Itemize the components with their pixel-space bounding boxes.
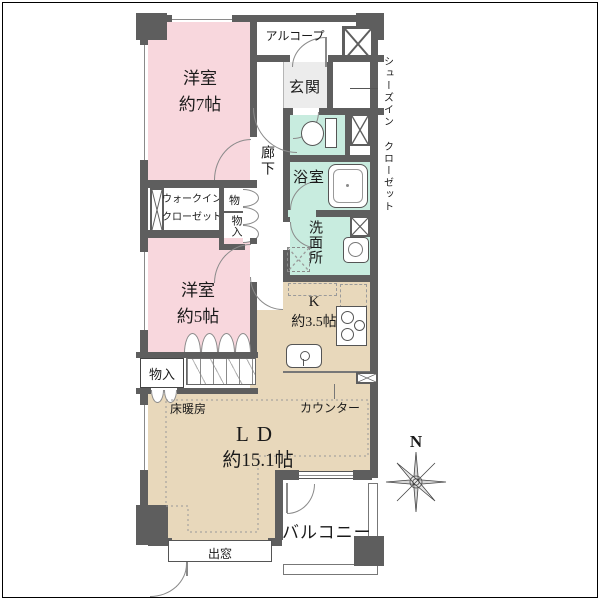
- toilet-tank-icon: [325, 118, 337, 148]
- burner: [354, 320, 365, 331]
- faucet-stem: [303, 359, 304, 366]
- entrance-label: 玄関: [289, 76, 321, 97]
- wall: [232, 15, 252, 22]
- kitchen-sink-icon: [286, 344, 322, 368]
- sic-label: シューズイン クローゼット: [380, 56, 394, 142]
- sic-label-col2: クローゼット: [382, 141, 393, 213]
- wall: [148, 180, 257, 188]
- washbasin-bowl: [348, 242, 363, 257]
- closet-bifold-door: [243, 189, 259, 207]
- wall: [140, 15, 148, 45]
- wall: [327, 62, 333, 108]
- bath-door-gap: [288, 210, 316, 217]
- wall: [148, 230, 224, 238]
- ld-closet-label: 物入: [140, 364, 184, 383]
- window: [140, 252, 148, 330]
- washroom-label: 洗面所: [304, 220, 324, 276]
- ld-name: LD: [188, 420, 328, 448]
- bedroom7-label: 洋室 約7帖: [158, 66, 242, 117]
- sic-label-col1: シューズイン: [382, 56, 393, 128]
- floor-plan: シューズイン クローゼット ウォークイン クローゼット 物: [0, 0, 600, 600]
- compass-rose-icon: [384, 450, 448, 514]
- bathtub-drain-dot: [346, 184, 349, 187]
- bedroom7-name: 洋室: [158, 66, 242, 92]
- wic-label-line2: クローゼット: [162, 209, 222, 227]
- window: [140, 45, 148, 160]
- wall: [353, 470, 372, 480]
- shaft-x-icon: [358, 374, 376, 382]
- closet-hatch-area: [186, 358, 256, 385]
- kitchen-name: K: [283, 292, 345, 313]
- toilet-icon: [301, 121, 324, 146]
- kitchen-label: K 約3.5帖: [283, 292, 345, 333]
- wall: [148, 15, 172, 22]
- shaft-x-icon: [352, 218, 368, 235]
- wall: [140, 160, 148, 252]
- hall-closet-top-label: 物: [224, 192, 245, 208]
- ld-label: LD 約15.1帖: [188, 420, 328, 474]
- wall: [283, 155, 372, 162]
- bedroom5-name: 洋室: [154, 278, 242, 304]
- pipe-shaft-box: [350, 216, 370, 237]
- wic-label-line1: ウォークイン: [162, 191, 222, 209]
- bathroom-label: 浴室: [293, 166, 325, 187]
- bedroom7-size: 約7帖: [158, 92, 242, 118]
- bedroom5-label: 洋室 約5帖: [154, 278, 242, 329]
- pipe-shaft-box: [350, 114, 370, 146]
- entrance-step-line: [283, 62, 284, 108]
- wall: [257, 55, 290, 62]
- balcony-label: バルコニー: [282, 518, 372, 543]
- shaft-x-icon: [352, 116, 368, 144]
- kitchen-size: 約3.5帖: [283, 313, 345, 333]
- compass-north-label: N: [398, 432, 434, 452]
- wic-label: ウォークイン クローゼット: [162, 191, 222, 226]
- hallway-label: 廊下: [256, 145, 276, 189]
- bay-window-casement-arc: [150, 564, 187, 597]
- wall: [328, 55, 384, 62]
- counter-label: カウンター: [300, 399, 360, 416]
- wall: [283, 275, 372, 282]
- window: [172, 15, 232, 22]
- closet-divider: [224, 211, 245, 213]
- sic-leader-line: [350, 88, 378, 89]
- faucet: [300, 351, 310, 361]
- alcove-label: アルコープ: [256, 27, 334, 44]
- shaft-x-icon: [152, 190, 162, 230]
- bay-window-label: 出窓: [198, 545, 242, 562]
- closet-bifold-door: [243, 207, 259, 225]
- bedroom5-size: 約5帖: [154, 304, 242, 330]
- pipe-shaft-box: [356, 372, 378, 384]
- wall: [250, 75, 257, 137]
- balcony-door-leaf: [286, 483, 288, 513]
- hall-closet-bottom-label: 物入: [228, 215, 244, 243]
- floor-heating-label: 床暖房: [170, 400, 206, 417]
- ld-size: 約15.1帖: [188, 448, 328, 474]
